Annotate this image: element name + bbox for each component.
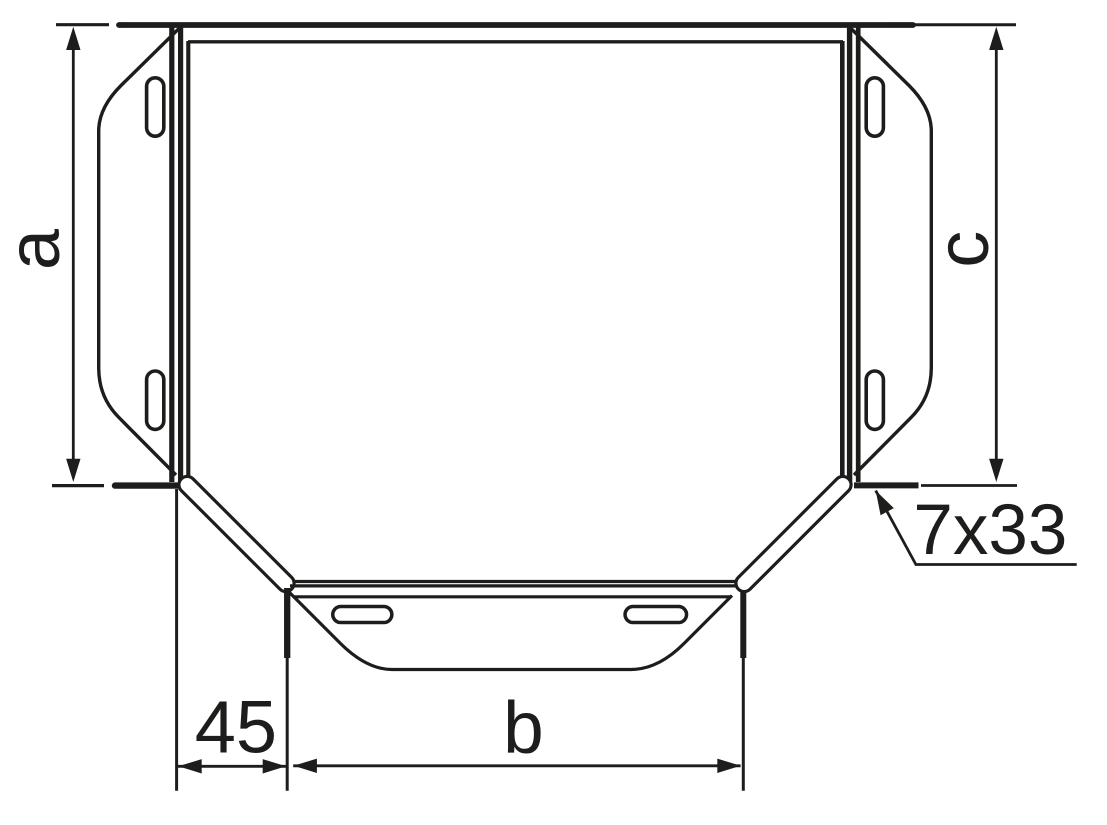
svg-text:c: c	[921, 231, 1004, 268]
svg-text:45: 45	[195, 686, 277, 769]
svg-text:b: b	[503, 688, 544, 769]
svg-text:a: a	[0, 228, 75, 270]
svg-text:7x33: 7x33	[913, 491, 1067, 570]
